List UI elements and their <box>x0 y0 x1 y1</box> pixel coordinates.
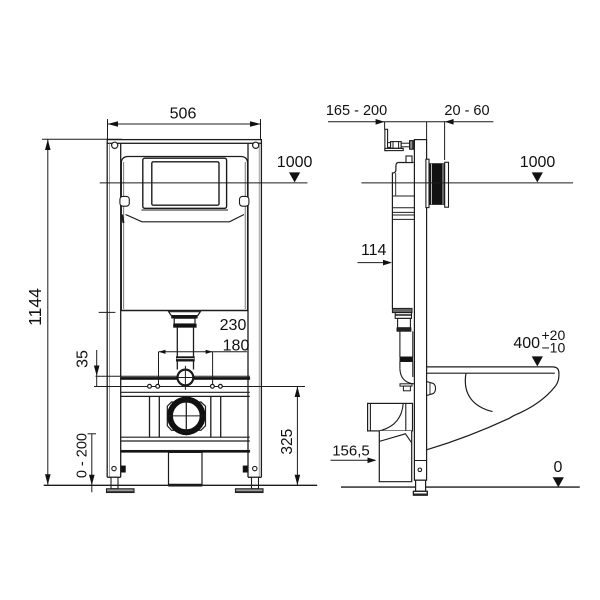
svg-text:1144: 1144 <box>25 288 45 326</box>
svg-text:230: 230 <box>220 317 247 334</box>
svg-text:400: 400 <box>513 335 540 352</box>
svg-text:506: 506 <box>170 106 197 123</box>
svg-text:1000: 1000 <box>277 154 313 171</box>
svg-text:35: 35 <box>75 350 92 368</box>
svg-text:325: 325 <box>279 429 296 455</box>
svg-text:0 - 200: 0 - 200 <box>74 433 90 478</box>
svg-text:−10: −10 <box>542 339 566 355</box>
svg-text:114: 114 <box>361 242 387 259</box>
svg-text:180: 180 <box>223 337 250 354</box>
svg-text:0: 0 <box>554 459 563 476</box>
svg-text:156,5: 156,5 <box>332 443 370 460</box>
svg-text:165 - 200: 165 - 200 <box>326 103 387 119</box>
svg-text:1000: 1000 <box>520 154 556 171</box>
svg-text:20 - 60: 20 - 60 <box>444 103 489 119</box>
